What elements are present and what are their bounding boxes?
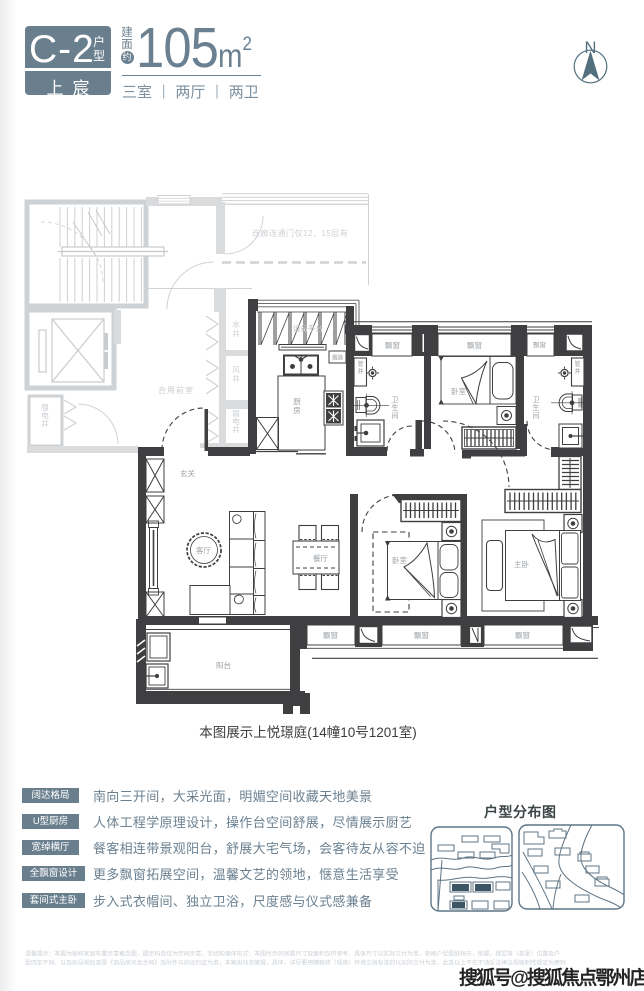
svg-text:强电井: 强电井 — [41, 403, 49, 428]
svg-text:烟道: 烟道 — [332, 354, 344, 362]
svg-text:飘窗: 飘窗 — [515, 630, 530, 640]
svg-text:水井: 水井 — [232, 319, 240, 338]
svg-text:厨房: 厨房 — [293, 397, 301, 415]
svg-text:卫生间: 卫生间 — [392, 396, 399, 420]
svg-text:飘窗: 飘窗 — [385, 340, 400, 350]
svg-text:卫生间: 卫生间 — [533, 396, 540, 420]
svg-text:连廊连通门仅12、15层有: 连廊连通门仅12、15层有 — [252, 228, 348, 238]
svg-text:合用前室: 合用前室 — [158, 385, 194, 395]
svg-text:飘窗: 飘窗 — [533, 340, 546, 349]
svg-text:管井: 管井 — [574, 360, 580, 376]
svg-text:餐厅: 餐厅 — [313, 554, 328, 563]
svg-text:飘窗: 飘窗 — [323, 630, 338, 640]
svg-text:管井: 管井 — [357, 360, 363, 376]
svg-text:风井: 风井 — [232, 365, 240, 383]
svg-text:卧室: 卧室 — [392, 555, 407, 565]
svg-text:阳台: 阳台 — [216, 660, 231, 670]
svg-text:弱电井: 弱电井 — [232, 409, 240, 434]
svg-text:飘窗: 飘窗 — [414, 630, 429, 640]
svg-text:卧室: 卧室 — [451, 386, 466, 396]
svg-text:玄关: 玄关 — [180, 468, 195, 478]
svg-text:飘窗: 飘窗 — [467, 340, 482, 350]
svg-text:客厅: 客厅 — [196, 545, 211, 555]
svg-text:主卧: 主卧 — [514, 559, 529, 569]
svg-text:设备平台: 设备平台 — [293, 323, 323, 333]
